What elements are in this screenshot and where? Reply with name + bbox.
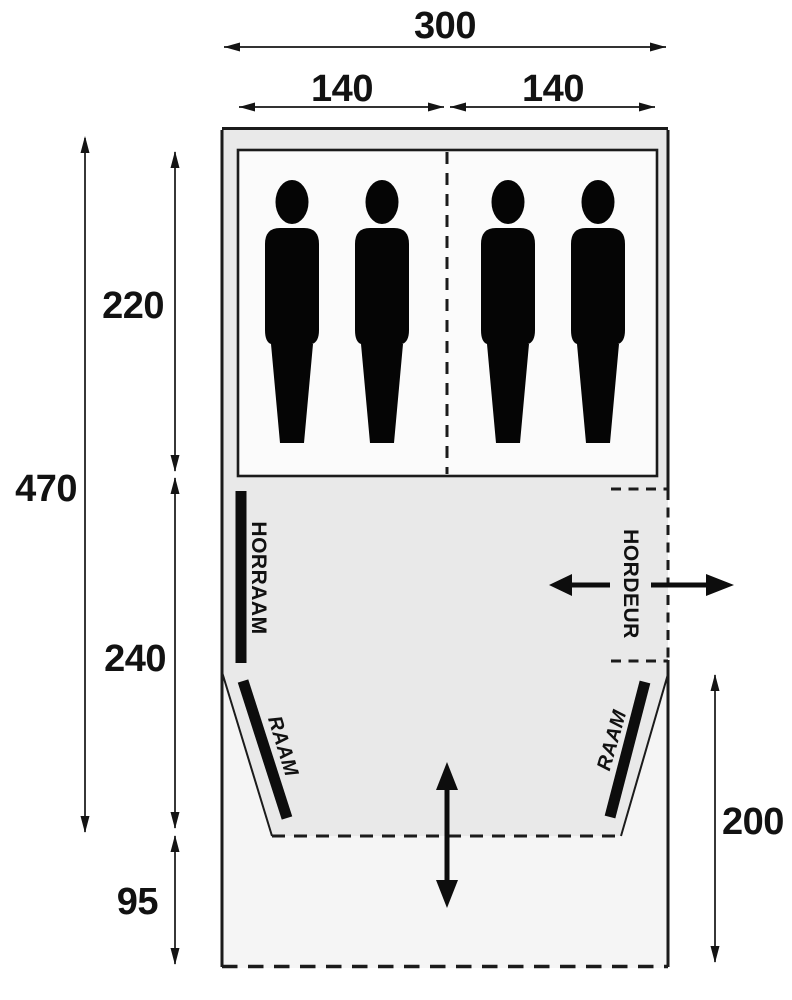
dim-side-section: 200 — [711, 674, 784, 963]
mesh-door-label: HORDEUR — [619, 529, 642, 639]
tent-floorplan-diagram: HORRAAM HORDEUR RAAM RAAM 300 140 140 — [0, 0, 792, 1000]
dim-total-depth-label: 470 — [15, 468, 77, 510]
dim-side-section-label: 200 — [722, 801, 784, 843]
dim-total-width: 300 — [224, 5, 666, 52]
dim-canopy-depth: 95 — [117, 835, 180, 965]
dim-sleeping-depth-label: 220 — [102, 285, 164, 327]
dim-left-cabin-width: 140 — [239, 68, 444, 112]
dim-canopy-depth-label: 95 — [117, 881, 159, 923]
dim-left-cabin-label: 140 — [311, 68, 373, 110]
dim-living-depth: 240 — [104, 477, 179, 829]
tent-floorplan-page: HORRAAM HORDEUR RAAM RAAM 300 140 140 — [0, 0, 792, 1000]
dim-right-cabin-width: 140 — [450, 68, 655, 112]
dim-total-depth: 470 — [15, 136, 89, 833]
dim-right-cabin-label: 140 — [522, 68, 584, 110]
dim-living-depth-label: 240 — [104, 638, 166, 680]
mesh-window-label: HORRAAM — [247, 521, 270, 634]
dim-sleeping-depth: 220 — [102, 151, 179, 472]
dim-total-width-label: 300 — [414, 5, 476, 47]
mesh-window-bar — [236, 491, 247, 663]
